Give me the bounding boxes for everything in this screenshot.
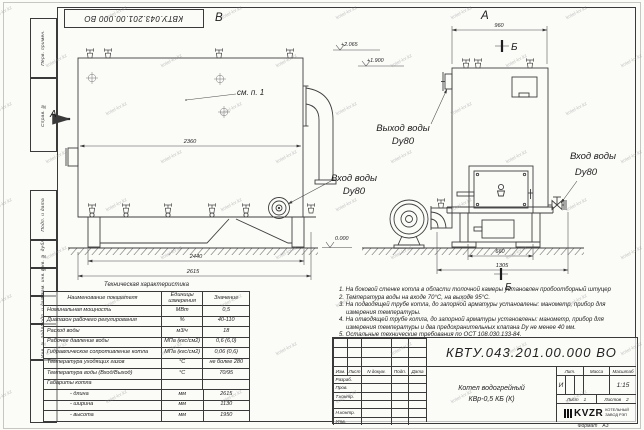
notes-block: 1. На боковой стенке котла в области топ… xyxy=(337,287,634,340)
table-cell: 18 xyxy=(203,326,249,337)
margin-box: Перв. примен. xyxy=(30,18,57,78)
tb-cell xyxy=(408,408,426,416)
table-cell xyxy=(203,379,249,390)
sheet-value: 1 xyxy=(584,397,587,402)
tb-cell xyxy=(391,392,408,400)
tb-cell xyxy=(391,400,408,408)
format-note: Формат А3 xyxy=(548,423,638,429)
note-line: 3. На подводящей трубе котла, до запорно… xyxy=(337,302,634,317)
margin-box: Подп. и дата xyxy=(30,190,57,240)
tb-cell xyxy=(347,357,361,366)
tb-cell xyxy=(391,383,408,391)
table-cell: Рабочее давление воды xyxy=(44,337,162,348)
lit-value: И xyxy=(556,375,565,394)
tb-cell xyxy=(408,400,426,408)
table-cell: Номинальная мощность xyxy=(44,305,162,316)
table-cell: Габариты котла xyxy=(44,379,162,390)
table-cell: % xyxy=(162,316,204,327)
tb-cell xyxy=(408,383,426,391)
tb-cell xyxy=(347,338,361,347)
table-cell: Температура уходящих газов xyxy=(44,358,162,369)
lit-cell-3 xyxy=(574,375,583,394)
tech-table: Наименование показателяЕдиницы измерения… xyxy=(43,291,250,422)
table-header-cell: Единицы измерения xyxy=(162,292,204,305)
table-row: Температура воды (Вход/Выход)°С70/95 xyxy=(44,368,249,379)
table-cell: Гидравлическое сопротивление котла xyxy=(44,347,162,358)
tb-cell xyxy=(408,347,426,356)
table-cell: МПа (кгс/см2) xyxy=(162,347,204,358)
table-row: - высотамм1950 xyxy=(44,410,249,421)
mass-value xyxy=(583,375,609,394)
kvzr-logo-subtext: КОТЕЛЬНЫЙ ЗАВОД РЭП xyxy=(605,408,629,417)
table-cell: 1130 xyxy=(204,400,249,411)
kvzr-logo-bars xyxy=(564,409,572,418)
table-cell: 40-110 xyxy=(203,316,249,327)
tb-cell xyxy=(361,417,391,425)
kvzr-logo: KVZR КОТЕЛЬНЫЙ ЗАВОД РЭП xyxy=(556,403,636,422)
tb-cell: Дата xyxy=(408,366,426,375)
table-cell: 0,06 (0,6) xyxy=(203,347,249,358)
tech-table-title: Техническая характеристика xyxy=(43,282,250,288)
table-cell: Температура воды (Вход/Выход) xyxy=(44,368,162,379)
tb-cell: Утв. xyxy=(333,417,361,425)
lit-cell-2 xyxy=(565,375,574,394)
table-cell: м3/ч xyxy=(162,326,204,337)
table-row: Рабочее давление водыМПа (кгс/см2)0,6 (6… xyxy=(44,337,249,348)
tb-cell xyxy=(361,408,391,416)
table-header-cell: Наименование показателя xyxy=(44,292,162,305)
table-row: Гидравлическое сопротивление котлаМПа (к… xyxy=(44,347,249,358)
margin-box: Инв. № дубл. xyxy=(30,240,57,268)
doc-number: КВТУ.043.201.00.000 ВО xyxy=(426,338,636,366)
product-name: Котел водогрейный КВр-0,5 КБ (К) xyxy=(426,366,556,422)
table-cell: 1950 xyxy=(204,410,249,421)
title-block: КВТУ.043.201.00.000 ВО Котел водогрейный… xyxy=(332,337,638,424)
table-row: Габариты котла xyxy=(44,379,249,390)
tb-cell xyxy=(391,347,408,356)
tb-cell: Лист xyxy=(347,366,361,375)
table-row: - ширинамм1130 xyxy=(44,400,249,411)
tb-cell xyxy=(361,357,391,366)
tb-cell xyxy=(408,375,426,383)
lit-header: Лит. xyxy=(556,366,583,375)
product-name-line2: КВр-0,5 КБ (К) xyxy=(468,395,514,406)
scale-value: 1:15 xyxy=(609,375,636,394)
inverted-doc-number: КВТУ.043.201.00.000 ВО xyxy=(84,14,183,23)
tb-cell xyxy=(408,357,426,366)
tb-cell: Изм. xyxy=(333,366,347,375)
tb-cell xyxy=(361,383,391,391)
tb-cell xyxy=(391,417,408,425)
table-cell: мм xyxy=(162,400,204,411)
tb-cell xyxy=(408,417,426,425)
kvzr-logo-text: KVZR xyxy=(574,408,603,419)
table-cell: °С xyxy=(162,368,204,379)
note-line: 4. На отводящей трубе котла, до запорной… xyxy=(337,317,634,332)
tb-cell: Подп. xyxy=(391,366,408,375)
table-row: - длинамм2615 xyxy=(44,389,249,400)
sheets-cell: Листов 2 xyxy=(596,394,636,403)
tb-cell: Разраб. xyxy=(333,375,361,383)
note-line: 2. Температура воды на входе 70°С, на вы… xyxy=(337,295,634,303)
table-cell: 2615 xyxy=(204,389,249,400)
tb-cell xyxy=(347,347,361,356)
tb-cell: N докум. xyxy=(361,366,391,375)
table-cell: не более 280 xyxy=(203,358,249,369)
table-cell: Диапазон рабочего регулирования xyxy=(44,316,162,327)
inverted-doc-number-stamp: КВТУ.043.201.00.000 ВО xyxy=(64,9,204,28)
margin-box-label: Справ. № xyxy=(41,103,46,127)
tb-cell xyxy=(361,400,391,408)
table-cell: 70/95 xyxy=(203,368,249,379)
table-cell: мм xyxy=(162,410,204,421)
table-row: Температура уходящих газов°Сне более 280 xyxy=(44,358,249,369)
table-cell: - высота xyxy=(44,410,162,421)
tb-cell xyxy=(361,375,391,383)
sheet-cell: Лист 1 xyxy=(556,394,596,403)
format-value: А3 xyxy=(602,423,608,429)
tb-cell xyxy=(361,347,391,356)
table-cell xyxy=(162,379,204,390)
tb-cell xyxy=(391,375,408,383)
tb-cell xyxy=(408,392,426,400)
table-row: Номинальная мощностьМВт0,5 xyxy=(44,305,249,316)
table-cell: - ширина xyxy=(44,400,162,411)
table-cell: 0,5 xyxy=(203,305,249,316)
table-header-cell: Значение xyxy=(203,292,249,305)
table-cell: МВт xyxy=(162,305,204,316)
table-cell: МПа (кгс/см2) xyxy=(162,337,204,348)
sheets-value: 2 xyxy=(626,397,629,402)
table-cell: °С xyxy=(162,358,204,369)
tb-cell xyxy=(333,338,347,347)
table-cell: 0,6 (6,0) xyxy=(203,337,249,348)
tb-cell xyxy=(361,338,391,347)
tb-cell xyxy=(333,347,347,356)
table-cell: мм xyxy=(162,389,204,400)
tb-cell xyxy=(391,408,408,416)
table-cell: Расход воды xyxy=(44,326,162,337)
note-line: 1. На боковой стенке котла в области топ… xyxy=(337,287,634,295)
margin-box: Справ. № xyxy=(30,78,57,152)
table-cell: - длина xyxy=(44,389,162,400)
tb-cell xyxy=(391,338,408,347)
tb-cell xyxy=(408,338,426,347)
tb-cell xyxy=(333,400,361,408)
sheet-label: Лист xyxy=(567,397,579,402)
product-name-line1: Котел водогрейный xyxy=(458,384,525,395)
format-label: Формат xyxy=(578,423,598,429)
tb-cell xyxy=(333,357,347,366)
tb-cell xyxy=(391,357,408,366)
tb-cell: Н.контр. xyxy=(333,408,361,416)
tb-cell: Т.контр. xyxy=(333,392,361,400)
sheets-label: Листов xyxy=(604,397,621,402)
margin-box-label: Подп. и дата xyxy=(41,198,46,232)
drawing-sheet: В А Б Б А см. п. 1 2360 2440 2615 960 66… xyxy=(0,0,644,430)
table-row: Расход водым3/ч18 xyxy=(44,326,249,337)
table-header-row: Наименование показателяЕдиницы измерения… xyxy=(44,292,249,305)
scale-header: Масштаб xyxy=(609,366,636,375)
mass-header: Масса xyxy=(583,366,609,375)
margin-box-label: Перв. примен. xyxy=(41,30,46,66)
tb-cell xyxy=(361,392,391,400)
table-row: Диапазон рабочего регулирования%40-110 xyxy=(44,316,249,327)
tb-cell: Пров. xyxy=(333,383,361,391)
